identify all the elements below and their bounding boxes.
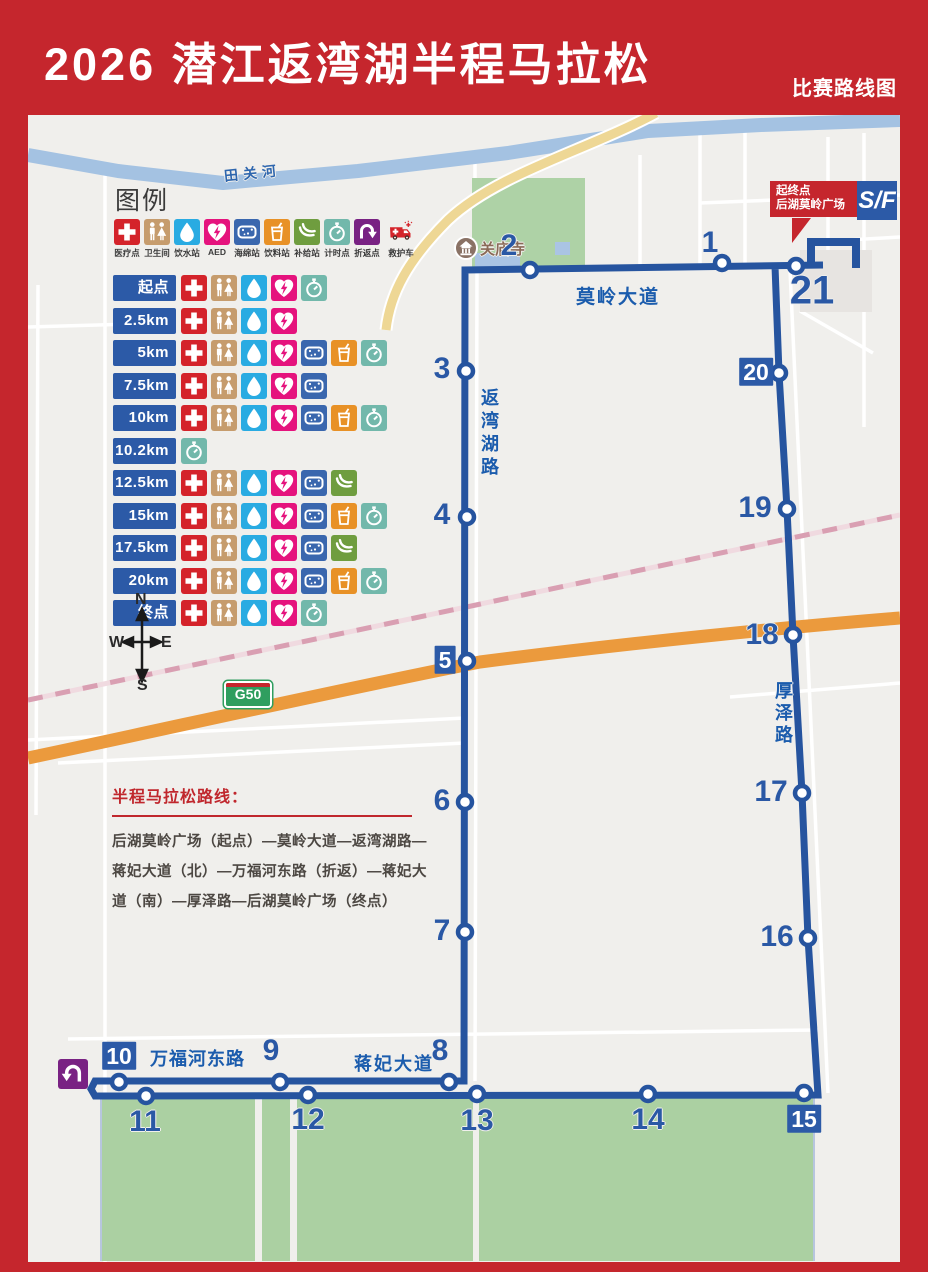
timing-icon: [361, 340, 387, 366]
route-circle-11: [139, 1089, 153, 1103]
sponge-icon: [234, 219, 260, 245]
route-circle-4: [460, 510, 474, 524]
temple-icon: [455, 237, 477, 259]
route-circle-10: [112, 1075, 126, 1089]
route-circle-13: [470, 1087, 484, 1101]
route-info-line: 后湖莫岭广场（起点）—莫岭大道—返湾湖路—: [112, 827, 412, 857]
medical-icon: [181, 470, 207, 496]
sponge-icon: [301, 535, 327, 561]
callout-text: 起终点 后湖莫岭广场: [770, 181, 857, 217]
km-point-21: 21: [790, 269, 835, 314]
callout-line2: 后湖莫岭广场: [776, 198, 852, 212]
station-row-2.5km: 2.5km: [113, 308, 391, 334]
station-label: 12.5km: [113, 470, 176, 496]
km-point-6: 6: [434, 784, 451, 818]
km-point-17: 17: [754, 775, 787, 809]
station-label: 15km: [113, 503, 176, 529]
drink-icon: [331, 340, 357, 366]
route-circle-15: [797, 1086, 811, 1100]
km-point-16: 16: [760, 920, 793, 954]
timing-icon: [361, 503, 387, 529]
compass-w: W: [109, 634, 124, 652]
toilet-icon: [211, 600, 237, 626]
water-icon: [241, 275, 267, 301]
station-row-10.2km: 10.2km: [113, 438, 391, 464]
supply-icon: [331, 535, 357, 561]
route-info: 半程马拉松路线： 后湖莫岭广场（起点）—莫岭大道—返湾湖路— 蒋妃大道（北）—万…: [112, 783, 412, 917]
timing-icon: [361, 405, 387, 431]
legend-title: 图例: [115, 181, 169, 217]
aed-icon: [204, 219, 230, 245]
km-point-15: 15: [787, 1105, 821, 1133]
aed-icon: [271, 503, 297, 529]
tianguan-river: [28, 120, 900, 183]
water-icon: [241, 535, 267, 561]
aed-icon: [271, 405, 297, 431]
km-point-13: 13: [460, 1104, 493, 1138]
route-circle-16: [801, 931, 815, 945]
aed-icon: [271, 535, 297, 561]
timing-icon: [301, 275, 327, 301]
medical-icon: [181, 535, 207, 561]
station-label: 17.5km: [113, 535, 176, 561]
turnaround-icon: [58, 1059, 88, 1089]
compass-n: N: [135, 591, 147, 609]
wanfuhe-road-label: 万福河东路: [150, 1045, 245, 1071]
sponge-icon: [301, 373, 327, 399]
aed-icon: [271, 568, 297, 594]
toilet-icon: [211, 503, 237, 529]
aed-icon: [271, 470, 297, 496]
toilet-icon: [211, 275, 237, 301]
page-subtitle: 比赛路线图: [792, 72, 897, 101]
km-point-9: 9: [263, 1034, 280, 1068]
water-icon: [241, 600, 267, 626]
km-point-2: 2: [501, 229, 518, 263]
route-info-line: 蒋妃大道（北）—万福河东路（折返）—蒋妃大: [112, 857, 412, 887]
medical-icon: [181, 275, 207, 301]
km-point-1: 1: [702, 226, 719, 260]
timing-icon: [361, 568, 387, 594]
station-row-5km: 5km: [113, 340, 391, 366]
start-finish-callout: 起终点 后湖莫岭广场 S/F: [770, 181, 897, 220]
sponge-icon: [301, 503, 327, 529]
route-circle-5: [460, 654, 474, 668]
medical-icon: [181, 568, 207, 594]
toilet-icon: [211, 535, 237, 561]
g50-highway-badge: G50: [224, 681, 272, 708]
toilet-icon: [144, 219, 170, 245]
route-circle-9: [273, 1075, 287, 1089]
legend-items: 医疗点卫生间饮水站AED海绵站饮料站补给站计时点折返点救护车: [112, 219, 420, 259]
km-point-14: 14: [631, 1103, 664, 1137]
medical-icon: [114, 219, 140, 245]
km-point-11: 11: [129, 1105, 161, 1139]
legend-item-ambulance: 救护车: [382, 219, 420, 259]
callout-line1: 起终点: [776, 184, 852, 198]
route-circle-18: [786, 628, 800, 642]
route-circle-12: [301, 1088, 315, 1102]
sponge-icon: [301, 405, 327, 431]
water-icon: [241, 503, 267, 529]
drink-icon: [331, 405, 357, 431]
station-row-12.5km: 12.5km: [113, 470, 391, 496]
sponge-icon: [301, 340, 327, 366]
aed-icon: [271, 600, 297, 626]
compass: N S W E: [111, 593, 171, 693]
station-label: 10km: [113, 405, 176, 431]
water-icon: [241, 470, 267, 496]
route-map: 图例 医疗点卫生间饮水站AED海绵站饮料站补给站计时点折返点救护车 起点2.5k…: [28, 115, 900, 1262]
station-label: 7.5km: [113, 373, 176, 399]
compass-e: E: [161, 634, 172, 652]
route-info-line: 道（南）—厚泽路—后湖莫岭广场（终点）: [112, 887, 412, 917]
water-icon: [174, 219, 200, 245]
medical-icon: [181, 373, 207, 399]
water-icon: [241, 373, 267, 399]
drink-icon: [331, 568, 357, 594]
compass-s: S: [137, 677, 148, 695]
timing-icon: [301, 600, 327, 626]
drink-icon: [331, 503, 357, 529]
sponge-icon: [301, 568, 327, 594]
station-table: 起点2.5km5km7.5km10km10.2km12.5km15km17.5k…: [113, 275, 391, 633]
moling-avenue-label: 莫岭大道: [576, 282, 660, 309]
toilet-icon: [211, 470, 237, 496]
fanwanhu-road-label: 返湾湖路: [476, 388, 502, 480]
water-icon: [241, 308, 267, 334]
km-point-4: 4: [434, 498, 451, 532]
km-point-18: 18: [745, 618, 778, 652]
toilet-icon: [211, 373, 237, 399]
route-circle-3: [459, 364, 473, 378]
station-row-17.5km: 17.5km: [113, 535, 391, 561]
aed-icon: [271, 373, 297, 399]
route-circle-20: [772, 366, 786, 380]
route-circle-6: [458, 795, 472, 809]
page-title: 2026 潜江返湾湖半程马拉松: [44, 28, 652, 93]
route-circle-17: [795, 786, 809, 800]
aed-icon: [271, 340, 297, 366]
km-point-19: 19: [738, 491, 771, 525]
sf-badge: S/F: [857, 181, 897, 220]
station-label: 5km: [113, 340, 176, 366]
poster: { "header": { "title": "2026 潜江返湾湖半程马拉松"…: [0, 0, 928, 1272]
km-point-8: 8: [432, 1034, 449, 1068]
station-label: 起点: [113, 275, 176, 301]
toilet-icon: [211, 568, 237, 594]
station-label: 2.5km: [113, 308, 176, 334]
water-icon: [241, 405, 267, 431]
km-point-12: 12: [291, 1103, 324, 1137]
toilet-icon: [211, 405, 237, 431]
km-point-5: 5: [435, 646, 456, 674]
aed-icon: [271, 308, 297, 334]
houze-road-label: 厚泽路: [770, 681, 796, 747]
ambulance-icon: [388, 219, 414, 245]
station-row-7.5km: 7.5km: [113, 373, 391, 399]
sponge-icon: [301, 470, 327, 496]
km-point-3: 3: [434, 352, 451, 386]
medical-icon: [181, 503, 207, 529]
medical-icon: [181, 308, 207, 334]
station-row-20km: 20km: [113, 568, 391, 594]
km-point-20: 20: [739, 358, 773, 386]
km-point-7: 7: [434, 914, 451, 948]
station-row-起点: 起点: [113, 275, 391, 301]
callout-pointer: [792, 218, 811, 243]
medical-icon: [181, 600, 207, 626]
route-circle-7: [458, 925, 472, 939]
south-green-fields: [102, 1097, 813, 1261]
route-circle-14: [641, 1087, 655, 1101]
route-circle-19: [780, 502, 794, 516]
station-label: 20km: [113, 568, 176, 594]
legend-label-ambulance: 救护车: [378, 247, 424, 259]
timing-icon: [181, 438, 207, 464]
station-label: 10.2km: [113, 438, 176, 464]
medical-icon: [181, 405, 207, 431]
timing-icon: [324, 219, 350, 245]
turnaround-icon: [354, 219, 380, 245]
water-icon: [241, 568, 267, 594]
route-circle-8: [442, 1075, 456, 1089]
drink-icon: [264, 219, 290, 245]
route-circle-2: [523, 263, 537, 277]
jiangfei-avenue-label: 蒋妃大道: [354, 1050, 434, 1076]
medical-icon: [181, 340, 207, 366]
route-info-title: 半程马拉松路线：: [112, 783, 412, 817]
station-row-10km: 10km: [113, 405, 391, 431]
km-point-10: 10: [102, 1042, 136, 1070]
water-icon: [241, 340, 267, 366]
aed-icon: [271, 275, 297, 301]
supply-icon: [331, 470, 357, 496]
station-row-15km: 15km: [113, 503, 391, 529]
toilet-icon: [211, 308, 237, 334]
toilet-icon: [211, 340, 237, 366]
supply-icon: [294, 219, 320, 245]
